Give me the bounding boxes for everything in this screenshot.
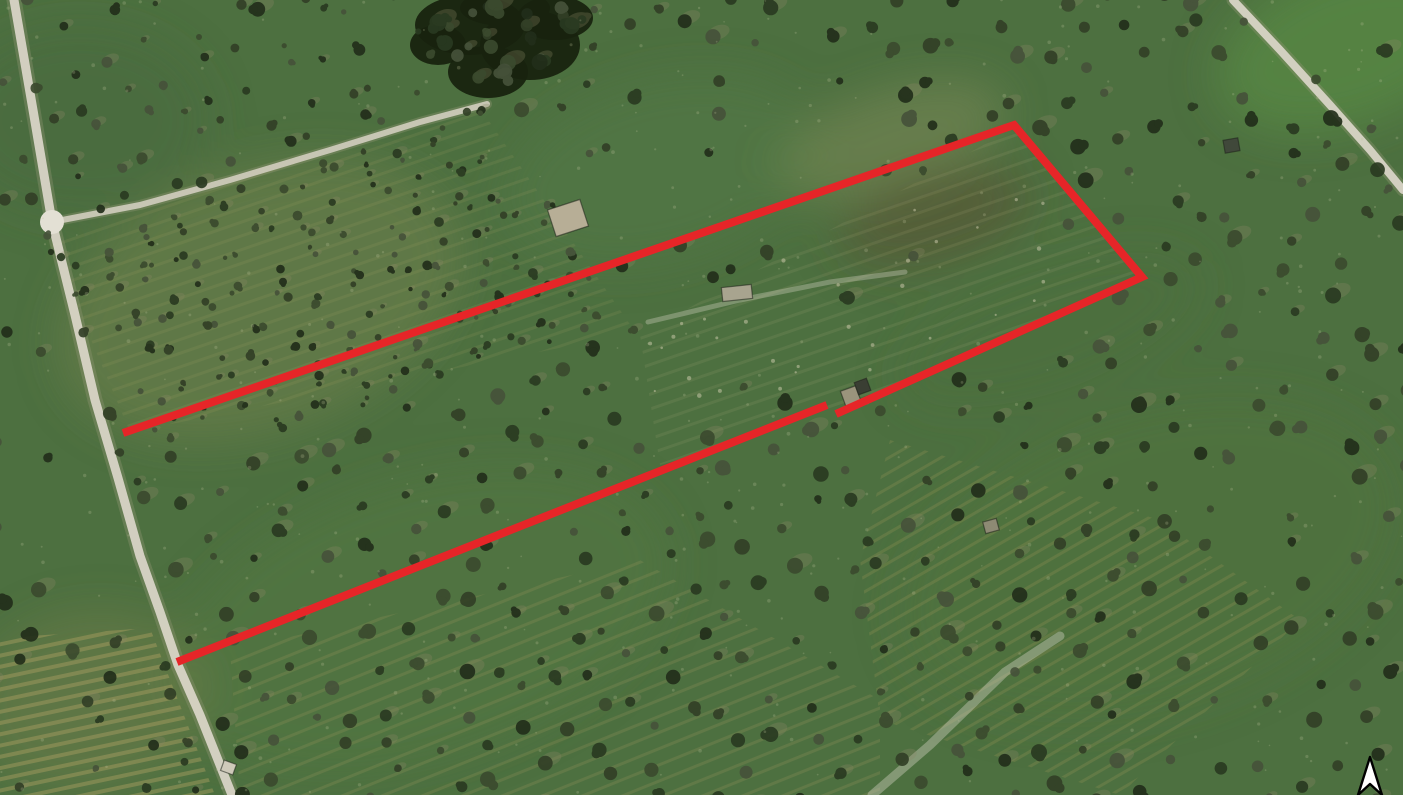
stone-ruin	[721, 284, 752, 301]
aerial-imagery	[0, 0, 1403, 795]
small-structure-northeast	[1223, 138, 1240, 153]
road-junction	[40, 210, 64, 234]
satellite-map-view[interactable]	[0, 0, 1403, 795]
